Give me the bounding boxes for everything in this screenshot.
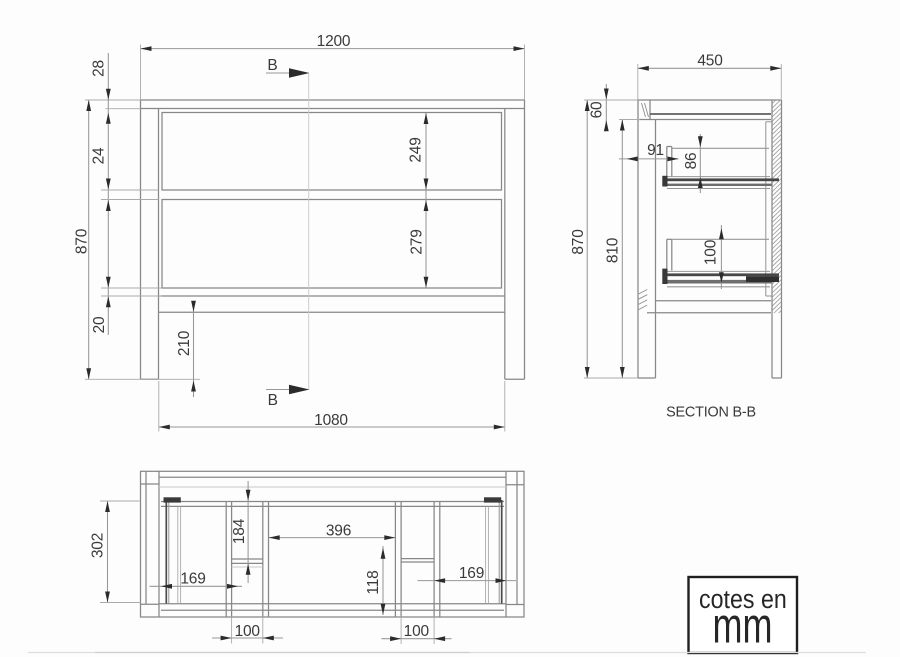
svg-text:mm: mm (713, 598, 773, 654)
svg-text:1200: 1200 (317, 33, 351, 50)
svg-text:SECTION B-B: SECTION B-B (666, 405, 756, 421)
svg-text:302: 302 (90, 533, 107, 558)
svg-text:169: 169 (180, 571, 205, 588)
svg-text:100: 100 (235, 623, 261, 640)
svg-text:210: 210 (176, 330, 193, 356)
svg-text:100: 100 (703, 239, 720, 265)
svg-text:870: 870 (570, 229, 587, 255)
svg-text:184: 184 (231, 518, 248, 544)
svg-text:20: 20 (91, 316, 108, 333)
svg-text:B: B (268, 392, 278, 409)
svg-text:169: 169 (459, 565, 484, 582)
svg-text:100: 100 (404, 623, 430, 640)
svg-text:450: 450 (697, 53, 723, 70)
svg-text:24: 24 (91, 147, 108, 164)
svg-text:86: 86 (683, 153, 700, 170)
svg-text:118: 118 (365, 570, 382, 594)
svg-text:396: 396 (326, 523, 351, 540)
svg-text:91: 91 (647, 142, 664, 159)
svg-text:60: 60 (589, 101, 606, 118)
svg-text:249: 249 (408, 137, 425, 162)
svg-text:1080: 1080 (314, 412, 348, 429)
svg-text:810: 810 (605, 237, 622, 263)
svg-text:870: 870 (74, 228, 91, 254)
svg-text:B: B (267, 57, 277, 74)
svg-text:28: 28 (91, 60, 108, 77)
svg-text:279: 279 (409, 229, 426, 254)
